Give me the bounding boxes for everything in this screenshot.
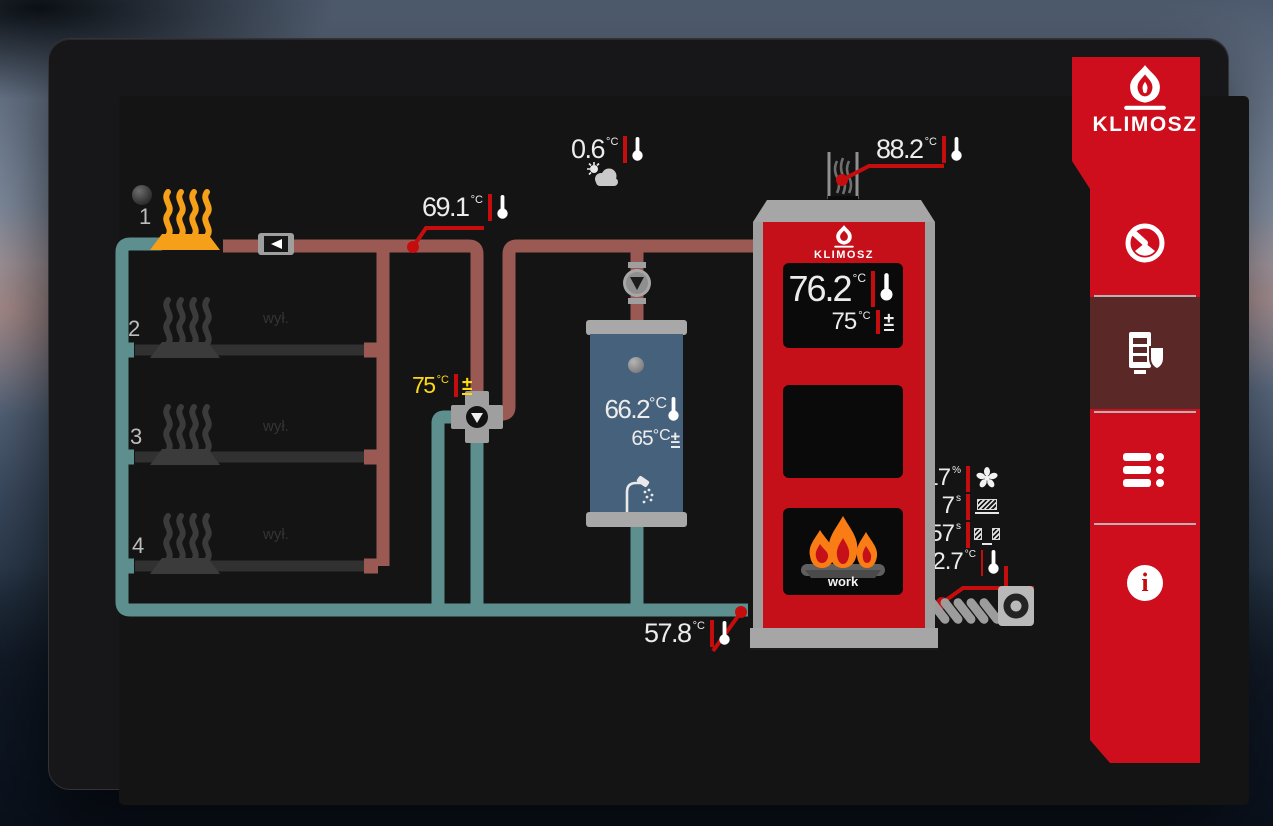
desktop-background: 1 2 wył. 3 wył. 4 bbox=[0, 0, 1273, 826]
boiler-fire-window: work bbox=[783, 508, 903, 595]
sidebar: KLIMOSZ bbox=[1072, 57, 1200, 763]
gauge-icon bbox=[1122, 220, 1168, 266]
tank-temp-label: 66.2 °C bbox=[592, 396, 680, 422]
outdoor-temp-label: 0.6°C bbox=[571, 136, 644, 163]
radiator-2-icon bbox=[146, 297, 224, 359]
boiler-setpoint-row[interactable]: 75 °C ± bbox=[783, 310, 903, 334]
red-divider bbox=[488, 194, 492, 221]
plus-minus-icon: ± bbox=[462, 377, 472, 395]
boiler-brand-flame-icon bbox=[831, 225, 857, 248]
thermometer-icon bbox=[496, 194, 509, 220]
boiler-middle-door bbox=[783, 385, 903, 478]
sidebar-divider bbox=[1094, 411, 1196, 413]
radiator-1-active-icon bbox=[146, 189, 224, 251]
red-divider bbox=[710, 620, 714, 647]
boiler-brand-text: KLIMOSZ bbox=[763, 249, 925, 261]
boiler-icon bbox=[1123, 330, 1167, 376]
thermometer-icon bbox=[631, 136, 644, 162]
radiator-3-icon bbox=[146, 404, 224, 466]
radiator-4-icon bbox=[146, 513, 224, 575]
feeder-pause-icon bbox=[974, 522, 1000, 546]
fan-icon bbox=[974, 466, 1000, 490]
red-divider bbox=[966, 466, 970, 492]
sidebar-item-menu[interactable] bbox=[1090, 414, 1200, 526]
boiler-base bbox=[750, 628, 938, 650]
red-divider bbox=[876, 310, 880, 334]
tank-sensor-port bbox=[628, 357, 644, 373]
sidebar-item-info[interactable]: i bbox=[1090, 527, 1200, 639]
return-temp-label: 57.8°C bbox=[644, 620, 731, 647]
boiler-temp-row: 76.2 °C bbox=[783, 271, 903, 307]
plus-minus-icon: ± bbox=[671, 431, 680, 448]
red-divider bbox=[942, 136, 946, 163]
app-screen bbox=[119, 96, 1249, 805]
info-icon: i bbox=[1127, 565, 1163, 601]
tank-bottom-cap bbox=[586, 512, 687, 527]
tank-top-cap bbox=[586, 320, 687, 335]
klimosz-flame-icon bbox=[1120, 65, 1170, 111]
thermometer-icon bbox=[987, 550, 1000, 574]
circuit-off-label: wył. bbox=[263, 527, 289, 542]
weather-sun-cloud-icon bbox=[584, 160, 622, 190]
red-divider bbox=[966, 494, 970, 520]
red-divider bbox=[981, 550, 983, 576]
mixer-setpoint-label[interactable]: 75°C ± bbox=[412, 374, 472, 397]
sidebar-logo-text: KLIMOSZ bbox=[1090, 113, 1200, 137]
feeder-work-icon bbox=[974, 494, 1000, 518]
plus-minus-icon: ± bbox=[884, 313, 894, 331]
sidebar-item-boiler[interactable] bbox=[1090, 297, 1200, 409]
sidebar-logo: KLIMOSZ bbox=[1090, 65, 1200, 137]
shower-icon bbox=[620, 474, 656, 514]
tank-setpoint-label[interactable]: 65 °C ± bbox=[592, 428, 680, 449]
boiler-status-label: work bbox=[783, 574, 903, 589]
flue-temp-label: 88.2°C bbox=[876, 136, 963, 163]
red-divider bbox=[871, 271, 875, 307]
thermometer-icon bbox=[950, 136, 963, 162]
red-divider bbox=[454, 374, 458, 397]
circuit-off-label: wył. bbox=[263, 311, 289, 326]
fire-icon bbox=[795, 514, 891, 582]
red-divider bbox=[966, 522, 970, 548]
boiler-top bbox=[753, 200, 935, 222]
thermometer-icon bbox=[879, 271, 894, 303]
sidebar-divider bbox=[1094, 523, 1196, 525]
thermometer-icon bbox=[667, 396, 680, 422]
radiator-number: 3 bbox=[130, 426, 142, 448]
radiator-number: 4 bbox=[132, 535, 144, 557]
circuit-off-label: wył. bbox=[263, 419, 289, 434]
red-divider bbox=[623, 136, 627, 163]
thermometer-icon bbox=[718, 620, 731, 646]
sidebar-item-dashboard[interactable] bbox=[1090, 187, 1200, 299]
boiler-display-panel[interactable]: 76.2 °C 75 °C ± bbox=[783, 263, 903, 348]
supply-temp-label: 69.1°C bbox=[422, 194, 509, 221]
radiator-number: 2 bbox=[128, 318, 140, 340]
list-icon bbox=[1123, 452, 1167, 488]
